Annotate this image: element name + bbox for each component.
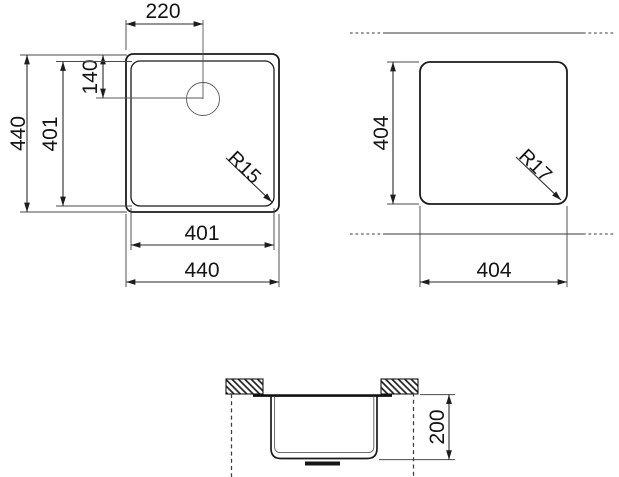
sink-outer-rim	[126, 54, 279, 212]
dim-label-cutout-height: 404	[370, 115, 393, 150]
dim-label-overall-height: 440	[7, 116, 30, 151]
bowl-section-outer-wall	[271, 397, 377, 459]
dim-bowl-depth: 200	[379, 395, 455, 460]
dim-bowl-corner-radius: R15	[223, 147, 272, 202]
dim-label-cutout-corner-radius: R17	[514, 145, 556, 186]
dim-tap-offset-x: 220	[126, 0, 203, 50]
dim-label-bowl-width: 401	[184, 222, 219, 245]
dim-cutout-height: 404	[370, 62, 419, 204]
dim-label-tap-offset-y: 140	[79, 59, 102, 94]
dim-label-overall-width: 440	[184, 259, 219, 282]
technical-drawing: 220 140 401 440 R15 401	[0, 0, 619, 477]
cutout-view: 404 R17 404	[350, 33, 616, 287]
cutout-outline	[420, 62, 567, 204]
dim-label-bowl-height: 401	[39, 116, 62, 151]
dim-cutout-corner-radius: R17	[514, 145, 561, 200]
bowl-section-inner-wall	[275, 397, 374, 453]
dim-overall-height: 440	[7, 55, 127, 212]
worktop-section-left	[226, 379, 263, 394]
worktop-section-right	[381, 379, 418, 394]
dim-label-bowl-depth: 200	[426, 409, 449, 444]
dim-label-tap-offset-x: 220	[145, 0, 180, 23]
dim-label-bowl-corner-radius: R15	[223, 147, 265, 188]
dim-bowl-width: 401	[131, 208, 274, 250]
section-view: 200	[226, 379, 455, 477]
front-view: 220 140 401 440 R15 401	[7, 0, 279, 287]
tap-hole-centerlines	[96, 20, 203, 99]
dim-cutout-width: 404	[420, 206, 567, 287]
dim-label-cutout-width: 404	[476, 259, 511, 282]
drain-outlet	[305, 462, 340, 466]
drawing-page: 220 140 401 440 R15 401	[0, 0, 619, 477]
